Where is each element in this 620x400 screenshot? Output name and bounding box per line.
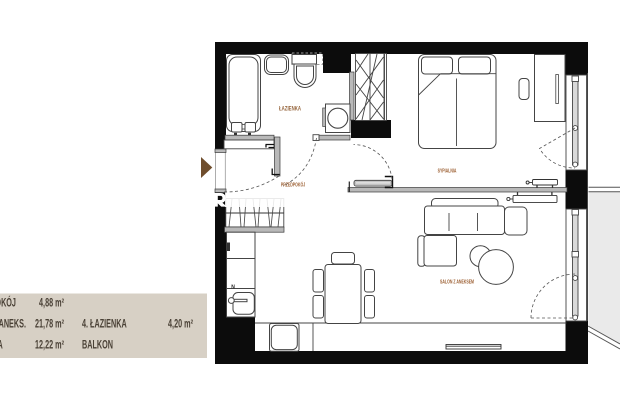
svg-text:3. SYPIALNIA: 3. SYPIALNIA bbox=[0, 339, 3, 352]
svg-text:21,78 m²: 21,78 m² bbox=[35, 318, 64, 331]
svg-text:SALON Z ANEKSEM: SALON Z ANEKSEM bbox=[440, 279, 474, 285]
svg-text:ŁAZIENKA: ŁAZIENKA bbox=[279, 106, 301, 113]
svg-text:12,22 m²: 12,22 m² bbox=[35, 339, 64, 352]
svg-text:4,20 m²: 4,20 m² bbox=[168, 318, 193, 331]
svg-text:4,88 m²: 4,88 m² bbox=[39, 297, 64, 310]
svg-text:2. SALON Z ANEKS.: 2. SALON Z ANEKS. bbox=[0, 318, 26, 331]
svg-text:N: N bbox=[231, 285, 235, 291]
svg-text:4. ŁAZIENKA: 4. ŁAZIENKA bbox=[82, 318, 127, 331]
svg-text:BALKON: BALKON bbox=[82, 339, 113, 352]
svg-text:1. PRZEDPOKÓJ: 1. PRZEDPOKÓJ bbox=[0, 296, 16, 310]
svg-text:SYPIALNIA: SYPIALNIA bbox=[438, 168, 457, 174]
